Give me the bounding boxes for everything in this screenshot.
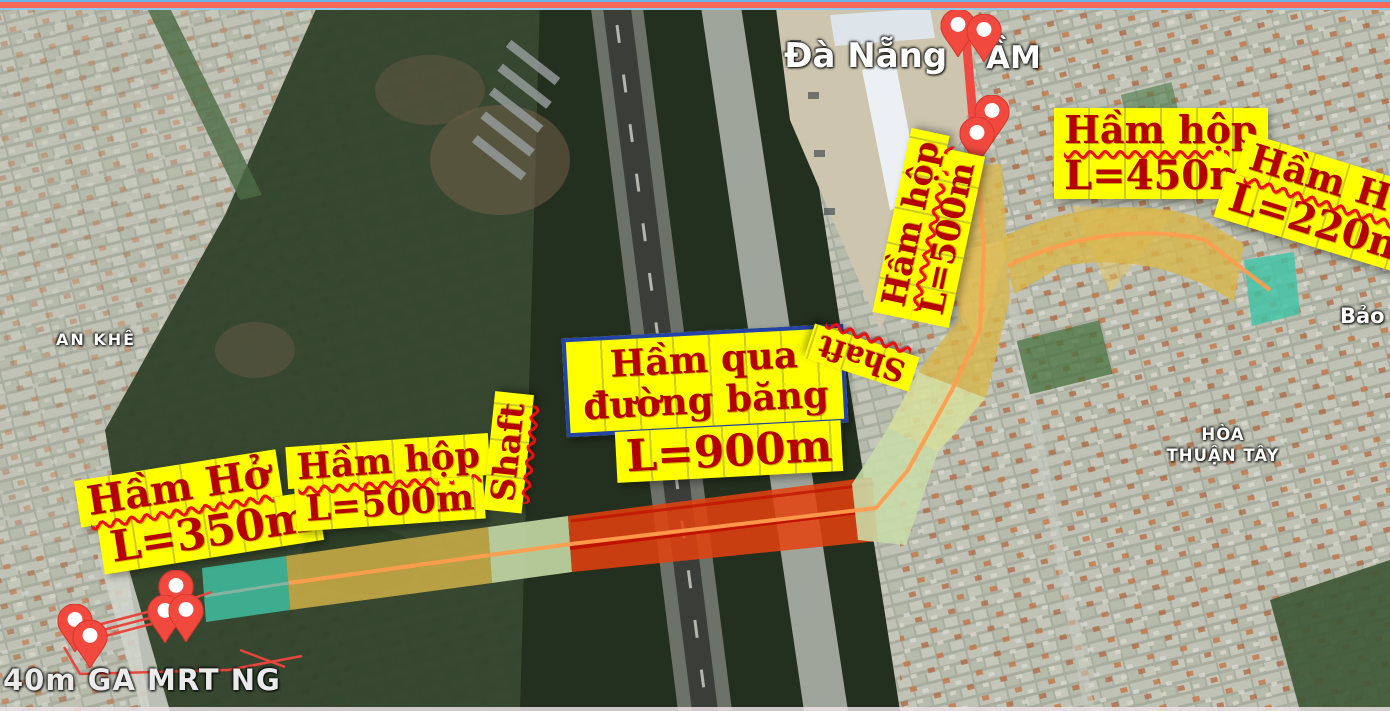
map-pin-icon[interactable] — [73, 620, 107, 668]
place-label-hoa-thuan-tay: HÒA THUẬN TÂY — [1148, 424, 1298, 467]
annotation-line2: đường băng — [582, 374, 830, 428]
slide-bottom-edge — [0, 707, 1390, 711]
annotation-ham-hop-500-west[interactable]: Hầm hộp L=500m — [285, 433, 494, 532]
annotation-ham-qua-duong-bang[interactable]: Hầm qua đường băng — [562, 324, 849, 437]
map-canvas: Đà Nẵng ẦM — [0, 0, 1390, 711]
annotation-body: Hầm qua đường băng — [562, 324, 849, 437]
place-label-line: THUẬN TÂY — [1148, 445, 1298, 466]
place-label-bao: Bảo — [1340, 304, 1385, 328]
place-label-ga-mrt: 40m GA MRT NG — [3, 663, 281, 697]
slide-top-stripe — [0, 0, 1390, 10]
map-pin-icon[interactable] — [169, 594, 203, 642]
place-label-an-khe: AN KHÊ — [56, 330, 136, 349]
annotation-line1: Hầm hộp — [1054, 108, 1268, 153]
tunnel-segment-open-east[interactable] — [1244, 252, 1300, 326]
place-label-line: HÒA — [1148, 424, 1298, 445]
